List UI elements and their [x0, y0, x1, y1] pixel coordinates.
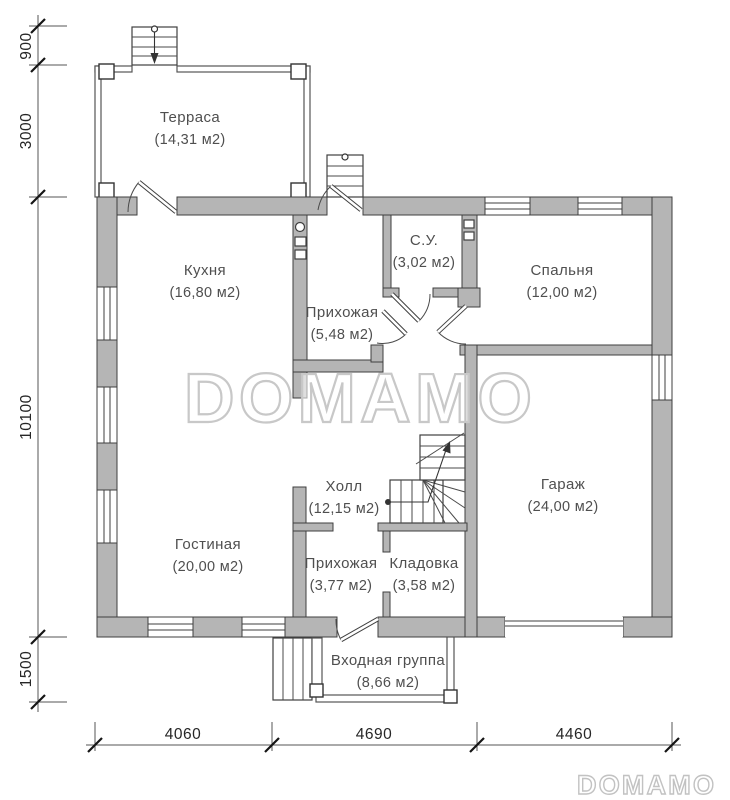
floor-plan-page: 900 3000 10100 1500 4060 4690 4460: [0, 0, 730, 800]
dim-left-900: 900: [18, 32, 35, 59]
dim-bottom-4690: 4690: [356, 726, 392, 743]
room-label-bedroom: Спальня: [530, 262, 593, 279]
dim-left-3000: 3000: [18, 113, 35, 149]
room-area-living-room: (20,00 м2): [172, 559, 243, 575]
room-label-hallway-top: Прихожая: [306, 304, 379, 321]
room-area-hallway-bottom: (3,77 м2): [310, 578, 373, 594]
stair-start-dot: [342, 154, 348, 160]
floor-plan-drawing: 900 3000 10100 1500 4060 4690 4460: [0, 0, 730, 800]
hall-staircase: [385, 433, 465, 523]
dim-left-1500: 1500: [18, 651, 35, 687]
entrance-porch: [273, 637, 457, 703]
watermark-corner: DOMAMO: [577, 770, 719, 800]
bedroom-door: [438, 306, 466, 344]
room-area-hallway-top: (5,48 м2): [311, 327, 374, 343]
room-label-living-room: Гостиная: [175, 536, 241, 553]
room-label-storage: Кладовка: [389, 555, 459, 572]
room-area-bedroom: (12,00 м2): [526, 285, 597, 301]
room-label-terrace: Терраса: [160, 109, 221, 126]
terrace-structure: [95, 64, 310, 198]
room-area-terrace: (14,31 м2): [154, 132, 225, 148]
room-label-kitchen: Кухня: [184, 262, 226, 279]
room-label-bathroom: С.У.: [410, 232, 438, 249]
stair-start-dot: [152, 26, 158, 32]
riser-square-icon: [295, 250, 306, 259]
riser-square-icon: [464, 232, 474, 240]
watermark-center: DOMAMO: [184, 359, 546, 437]
room-label-garage: Гараж: [541, 476, 585, 493]
dim-left-10100: 10100: [18, 394, 35, 440]
room-area-garage: (24,00 м2): [527, 499, 598, 515]
riser-square-icon: [295, 237, 306, 246]
room-area-storage: (3,58 м2): [393, 578, 456, 594]
terrace-entry-stairs: [132, 26, 177, 65]
bottom-dimension-line: 4060 4690 4460: [86, 722, 681, 752]
room-label-entrance: Входная группа: [331, 652, 445, 669]
left-dimension-line: 900 3000 10100 1500: [18, 15, 67, 712]
garage-door: [505, 617, 623, 637]
room-area-bathroom: (3,02 м2): [393, 255, 456, 271]
stair-start-dot: [385, 499, 391, 505]
porch-door: [336, 619, 378, 640]
bathroom-door: [392, 294, 430, 321]
riser-square-icon: [464, 220, 474, 228]
room-label-hall: Холл: [326, 478, 363, 495]
riser-circle-icon: [296, 223, 305, 232]
room-area-entrance: (8,66 м2): [357, 675, 420, 691]
dim-bottom-4460: 4460: [556, 726, 592, 743]
room-area-hall: (12,15 м2): [308, 501, 379, 517]
street-entry-stairs: [327, 154, 363, 197]
dim-bottom-4060: 4060: [165, 726, 201, 743]
room-area-kitchen: (16,80 м2): [169, 285, 240, 301]
room-label-hallway-bottom: Прихожая: [305, 555, 378, 572]
hall-door: [377, 311, 406, 344]
